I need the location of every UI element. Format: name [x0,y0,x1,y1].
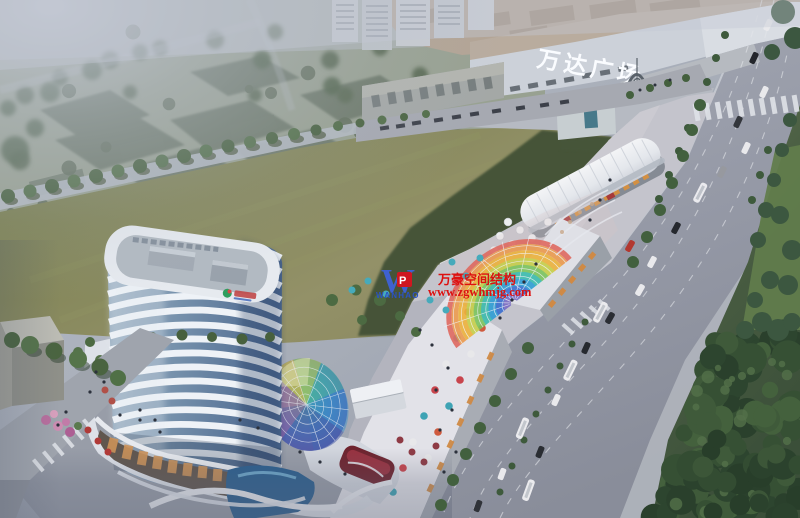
svg-text:WANHAO: WANHAO [376,291,420,300]
svg-text:www.zgwhmjg.com: www.zgwhmjg.com [428,285,532,299]
svg-text:P: P [399,275,406,287]
